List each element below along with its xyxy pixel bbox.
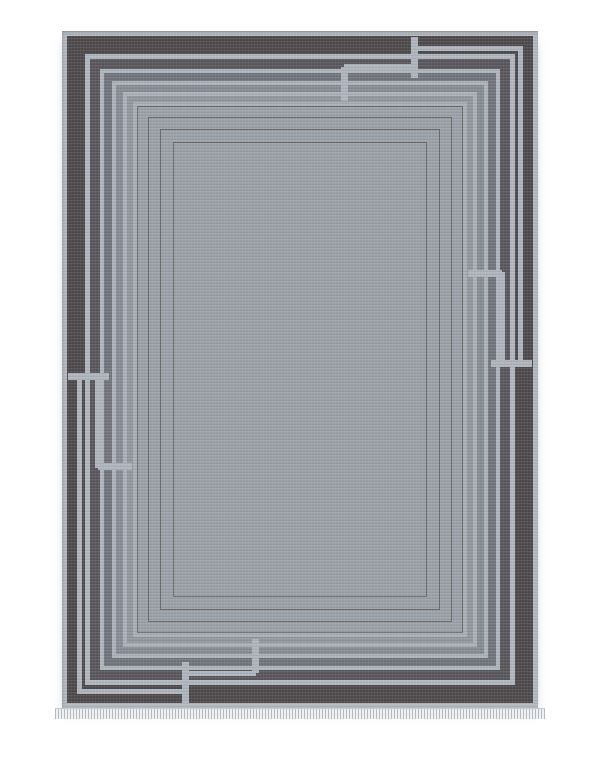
pinstripe-frame <box>173 142 427 597</box>
photo-canvas <box>0 0 600 768</box>
left-inner-offset-line <box>95 376 100 468</box>
right-inner-break <box>468 270 502 277</box>
bottom-inner-break <box>252 639 259 673</box>
right-edge-offset-line <box>518 46 523 365</box>
top-edge-offset-line <box>414 46 523 51</box>
top-inner-break <box>341 67 348 101</box>
rug <box>62 31 538 708</box>
bottom-edge-offset-line <box>77 689 186 694</box>
right-outer-break <box>491 360 532 367</box>
left-inner-break <box>98 463 132 470</box>
bottom-fringe <box>55 708 545 719</box>
left-outer-break <box>68 373 109 380</box>
bottom-outer-break <box>182 662 189 703</box>
top-inner-offset-line <box>344 64 414 69</box>
top-outer-break <box>411 37 418 78</box>
bottom-inner-offset-line <box>186 671 256 676</box>
right-inner-offset-line <box>500 272 505 364</box>
left-edge-offset-line <box>77 375 82 694</box>
